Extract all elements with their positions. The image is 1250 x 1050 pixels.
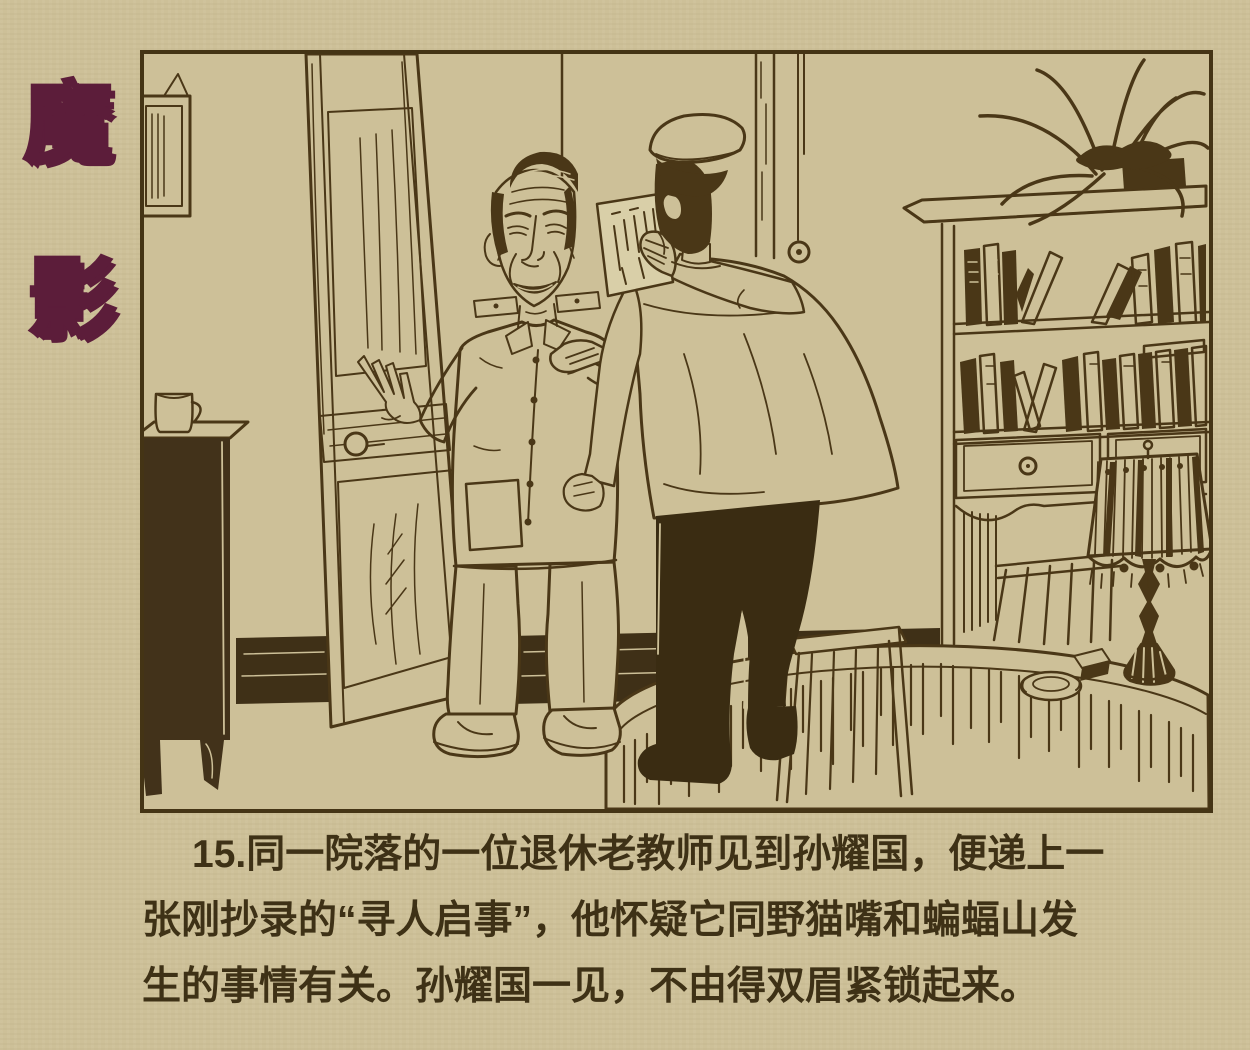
peaked-cap <box>650 115 745 163</box>
side-cabinet <box>144 422 248 796</box>
scene-illustration <box>144 54 1209 809</box>
visitor-right-shoe <box>746 706 797 760</box>
caption-line-1: 15.同一院落的一位退休老教师见到孙耀国，便递上一 <box>142 822 1132 888</box>
books-top-shelf <box>964 242 1206 326</box>
caption-line-3: 生的事情有关。孙耀国一见，不由得双眉紧锁起来。 <box>142 954 1132 1020</box>
doorknob <box>345 433 367 455</box>
visitor-fist <box>564 474 604 511</box>
table-lamp <box>1088 441 1209 685</box>
books-middle-shelf <box>960 340 1206 434</box>
ashtray <box>1021 672 1081 700</box>
teacher-shoes <box>434 708 621 757</box>
title-char-mo: 魔 <box>24 80 112 168</box>
bookshelf <box>904 186 1209 646</box>
title-char-ying: 影 <box>28 256 116 344</box>
picture-frame <box>144 74 190 216</box>
caption-line-2: 张刚抄录的“寻人启事”，他怀疑它同野猫嘴和蝙蝠山发 <box>142 888 1132 954</box>
illustration-panel <box>140 50 1213 813</box>
chair-behind-table <box>994 554 1121 644</box>
caption: 15.同一院落的一位退休老教师见到孙耀国，便递上一 张刚抄录的“寻人启事”，他怀… <box>142 822 1132 1020</box>
hanging-pull-cord <box>789 54 809 262</box>
visitor-left-shoe <box>638 744 732 784</box>
comic-page: 魔 影 <box>0 0 1250 1050</box>
